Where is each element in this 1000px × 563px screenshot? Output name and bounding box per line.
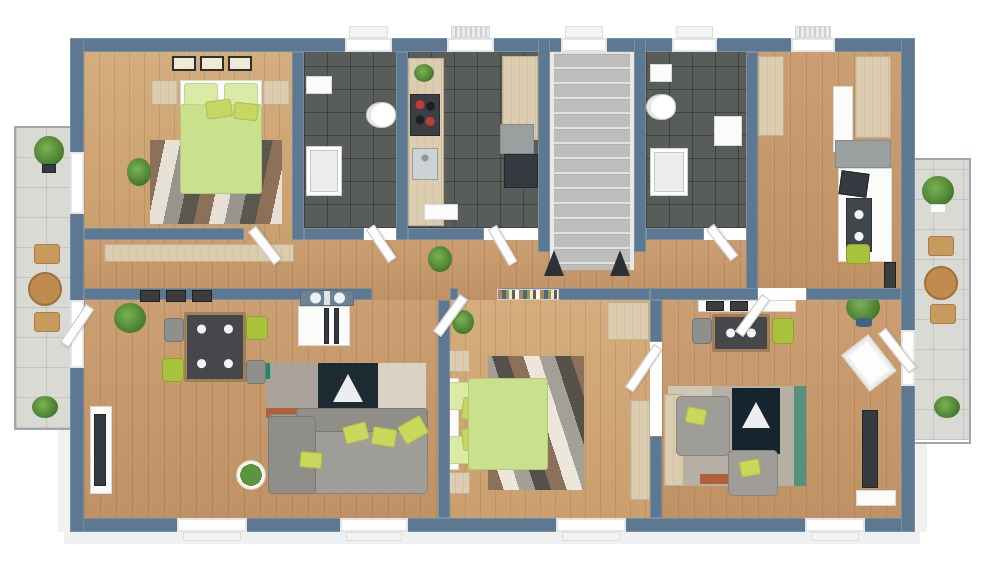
wall-bath1-hall (304, 228, 364, 240)
rug-living2-teal (794, 386, 806, 486)
washbasin-bath1 (306, 76, 332, 94)
shower-bath2 (650, 148, 688, 196)
bookshelf-hall (497, 289, 559, 300)
tv-living2 (862, 410, 878, 488)
kitchen-fridge (500, 124, 534, 154)
wardrobe-office-right (855, 56, 891, 138)
wall-bed1-bath1 (292, 52, 304, 240)
railing-balcony-left (14, 126, 72, 430)
wall-art-living-c (192, 290, 212, 302)
window-top-2 (447, 38, 494, 52)
bookcase-bedroom2 (607, 302, 649, 340)
floor-staircase (550, 52, 634, 270)
vanity-rail-b (334, 308, 339, 344)
sofa-pillow-b (371, 426, 398, 448)
sill-bottom-bedroom2 (562, 532, 620, 541)
armchair-pillow-b (739, 458, 761, 477)
wall-bath2-office (746, 52, 758, 300)
plant-bedroom1 (127, 158, 151, 186)
wall-art-kitchen (424, 204, 458, 220)
wardrobe-bedroom2 (630, 400, 650, 500)
sill-bottom-living-a (183, 532, 241, 541)
sill-top-4 (676, 26, 713, 38)
window-bottom-living2 (805, 518, 865, 532)
partition-frame-a (706, 301, 724, 311)
tv-stand-living2 (856, 490, 896, 506)
wall-bed2-living2-a (650, 300, 662, 342)
bed1-cushion-b (233, 102, 259, 121)
radiator-top-5 (795, 26, 831, 38)
dining-chair-gray-b (246, 360, 266, 384)
sill-top-3 (565, 26, 603, 38)
radiator-top-2 (451, 26, 490, 38)
window-top-3 (561, 38, 607, 52)
wall-bath1-kitchen (396, 52, 408, 240)
wall-kitchen-hall (408, 228, 484, 240)
bed2-duvet (468, 378, 548, 470)
window-top-4 (672, 38, 717, 52)
kitchen-base-cabinet (504, 154, 538, 188)
dining-chair-green-a (246, 316, 268, 340)
bed1-cushion-a (205, 98, 233, 119)
wall-art-living-a (140, 290, 160, 302)
partition-frame-b (730, 301, 748, 311)
wall-art-bed1-b (200, 56, 224, 71)
toilet-bath1 (366, 102, 396, 128)
wardrobe-office-left (758, 56, 784, 136)
wall-art-living-b (166, 290, 186, 302)
window-top-1 (345, 38, 392, 52)
nightstand-bed1-right (263, 80, 290, 105)
armchair-living2-a (676, 396, 730, 456)
wall-art-bed1-a (172, 56, 196, 71)
wall-outer-right (901, 38, 915, 532)
plant-pot-living2 (856, 318, 872, 327)
cabinet-bath2 (650, 64, 672, 82)
wall-outer-left (70, 38, 84, 532)
sill-top-1 (349, 26, 388, 38)
kitchen-counter (408, 58, 444, 226)
potted-plant-living (236, 460, 266, 490)
floor-plan[interactable] (0, 0, 1000, 563)
wall-kitchen-stairs (538, 38, 550, 252)
wall-stairs-bath2 (634, 38, 646, 252)
vanity-rail-a (324, 308, 329, 344)
dining-chair-green-b (162, 358, 184, 382)
window-bottom-living-a (177, 518, 247, 532)
wall-hall-living2-b (806, 288, 901, 300)
wall-bed2-living2-b (650, 436, 662, 518)
wall-hall-living2-a (650, 288, 758, 300)
washbasin-bath2 (714, 116, 742, 146)
kitchen-plant (414, 64, 434, 82)
sill-bottom-living2 (811, 532, 859, 541)
shower-bath1 (306, 146, 342, 196)
window-left-bedroom1 (70, 152, 84, 214)
foundation-right (915, 442, 927, 532)
chair-living2-green (772, 318, 794, 344)
sill-bottom-living-b (346, 532, 402, 541)
toilet-bath2 (646, 94, 676, 120)
desk-chair-office (838, 170, 869, 198)
chair-office-green (846, 244, 870, 264)
foundation-left (58, 430, 70, 532)
dining-chair-gray-a (164, 318, 184, 342)
window-top-5 (791, 38, 835, 52)
plant-living-corner (114, 303, 146, 333)
vanity-counter (300, 290, 354, 306)
kitchen-sink (412, 148, 438, 180)
window-bottom-bedroom2 (556, 518, 626, 532)
nightstand-bed1-left (151, 80, 178, 105)
chair-living2-gray (692, 318, 712, 344)
wall-art-bed1-c (228, 56, 252, 71)
tv-left (94, 414, 106, 486)
sofa-pillow-d (299, 451, 322, 469)
plant-hall (428, 246, 452, 272)
wall-bath2-hall (646, 228, 704, 240)
dining-table (184, 312, 246, 382)
shelf-office (835, 140, 891, 168)
kitchen-stove (410, 94, 440, 136)
wall-bed1-hall (84, 228, 244, 240)
window-bottom-living-b (340, 518, 408, 532)
